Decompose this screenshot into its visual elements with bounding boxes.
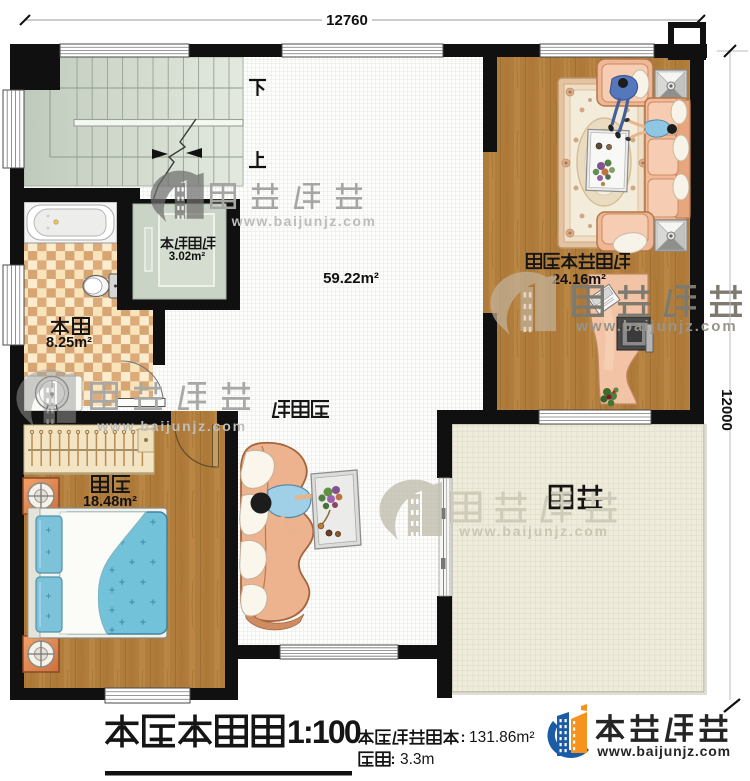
- svg-text:www.baijunjz.com: www.baijunjz.com: [575, 318, 737, 335]
- svg-text:12000: 12000: [718, 389, 735, 431]
- svg-text:8.25m²: 8.25m²: [46, 335, 92, 351]
- svg-text:www.baijunjz.com: www.baijunjz.com: [96, 418, 247, 434]
- svg-text:www.baijunjz.com: www.baijunjz.com: [458, 523, 609, 539]
- svg-text:1:100: 1:100: [287, 714, 361, 750]
- svg-text::: :: [461, 729, 466, 746]
- svg-text:131.86m²: 131.86m²: [469, 729, 534, 746]
- svg-text:59.22m²: 59.22m²: [323, 270, 379, 287]
- svg-text:18.48m²: 18.48m²: [83, 494, 137, 510]
- svg-text:12760: 12760: [326, 12, 368, 29]
- svg-text:3.3m: 3.3m: [400, 751, 434, 768]
- svg-text:www.baijunjz.com: www.baijunjz.com: [596, 743, 731, 759]
- svg-text::: :: [391, 751, 396, 768]
- svg-text:www.baijunjz.com: www.baijunjz.com: [231, 213, 377, 229]
- svg-text:3.02m²: 3.02m²: [169, 251, 206, 263]
